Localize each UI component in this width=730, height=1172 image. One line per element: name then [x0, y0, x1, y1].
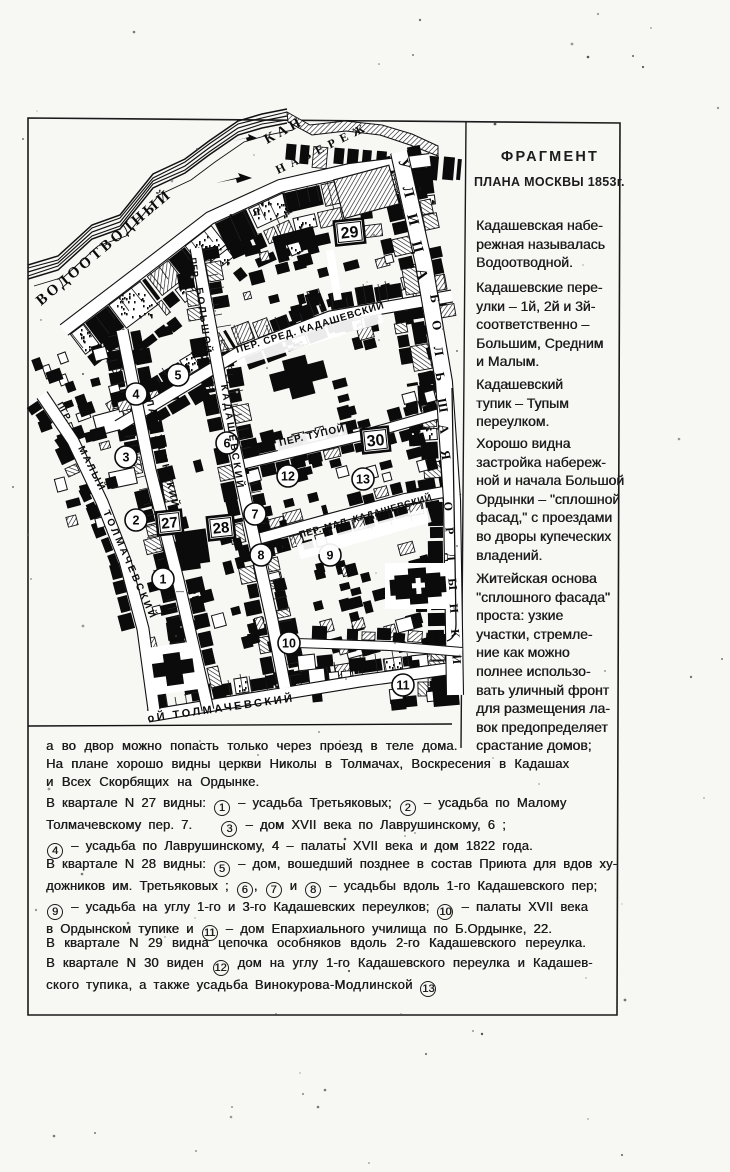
svg-text:4: 4 — [133, 388, 140, 402]
svg-text:30: 30 — [366, 432, 386, 451]
svg-text:3: 3 — [123, 451, 130, 465]
svg-text:1: 1 — [160, 573, 167, 587]
svg-text:О: О — [441, 501, 456, 512]
svg-text:2: 2 — [133, 514, 140, 528]
svg-text:— 30: — 30 — [176, 587, 197, 596]
svg-text:5: 5 — [175, 369, 182, 383]
svg-text:27: 27 — [160, 514, 178, 533]
svg-text:Ы: Ы — [445, 578, 460, 591]
svg-text:13: 13 — [356, 473, 370, 487]
svg-text:7: 7 — [252, 508, 259, 522]
svg-text:29: 29 — [340, 224, 360, 243]
svg-text:8: 8 — [258, 549, 265, 563]
svg-text:11: 11 — [396, 679, 409, 693]
svg-text:28: 28 — [212, 519, 230, 538]
svg-text:12: 12 — [281, 470, 295, 484]
svg-text:К: К — [448, 629, 463, 639]
svg-text:КАН: КАН — [262, 114, 307, 148]
svg-text:10: 10 — [282, 637, 296, 651]
svg-text:Р: Р — [442, 527, 457, 536]
svg-text:Н: Н — [447, 603, 462, 614]
